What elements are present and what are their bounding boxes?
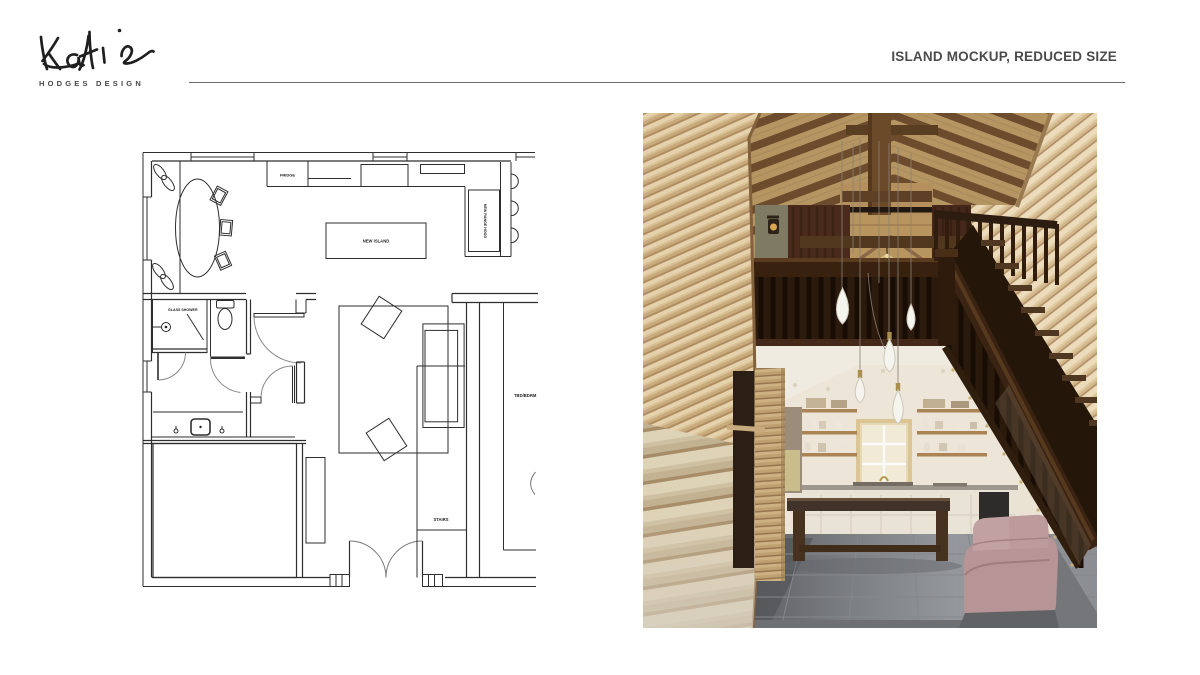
svg-text:GLASS SHOWER: GLASS SHOWER — [168, 308, 198, 312]
svg-text:NEW RANGE HOOD: NEW RANGE HOOD — [483, 204, 487, 239]
svg-text:NEW ISLAND: NEW ISLAND — [363, 239, 390, 244]
svg-text:STAIRS: STAIRS — [433, 517, 448, 522]
svg-text:TBD/BDRM: TBD/BDRM — [514, 393, 537, 398]
svg-text:FRIDGE: FRIDGE — [280, 173, 295, 178]
